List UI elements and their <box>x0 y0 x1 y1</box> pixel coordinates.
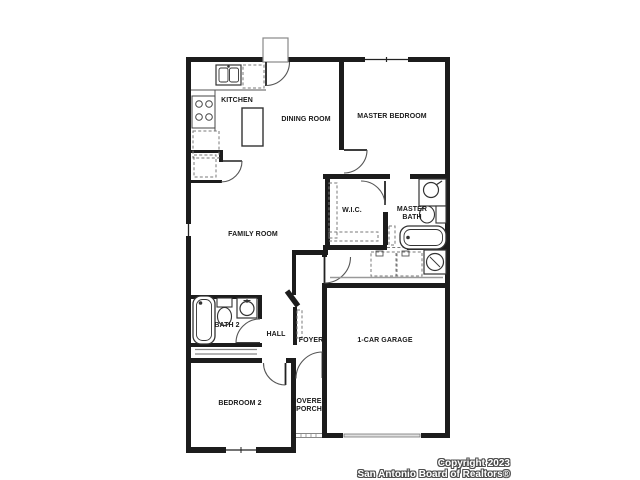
washer-icon <box>371 252 396 276</box>
coat-closet <box>297 310 302 338</box>
front-door <box>296 352 323 379</box>
copyright-line1: Copyright 2023 <box>357 458 510 469</box>
wic-door <box>361 181 385 205</box>
rear-door <box>263 38 290 86</box>
room-label-bath2: BATH 2 <box>207 322 247 330</box>
room-label-master-bath: MASTER BATH <box>393 206 431 222</box>
laundry-fixtures <box>330 250 446 278</box>
floor-plan-page: KITCHEN DINING ROOM MASTER BEDROOM FAMIL… <box>0 0 640 480</box>
water-heater-icon <box>424 250 446 274</box>
room-label-covered-porch: COVERED PORCH <box>286 398 332 414</box>
bath2-sink-icon <box>237 298 257 318</box>
laundry-door <box>325 257 351 283</box>
family-room-window <box>186 224 191 236</box>
refrigerator-icon <box>193 131 219 158</box>
room-label-bedroom2: BEDROOM 2 <box>205 400 275 408</box>
wic-shelving-bottom <box>329 232 378 241</box>
room-label-garage: 1-CAR GARAGE <box>345 337 425 345</box>
room-label-kitchen: KITCHEN <box>207 97 267 105</box>
bath2-tub-icon <box>193 296 215 344</box>
kitchen-sink-icon <box>216 65 241 85</box>
porch-steps <box>296 434 322 438</box>
bedroom2-door <box>264 363 286 385</box>
kitchen-island <box>242 108 263 146</box>
dryer-icon <box>397 252 422 276</box>
master-bedroom-door <box>344 150 367 173</box>
pantry-door <box>221 161 242 182</box>
master-tub-icon <box>400 226 446 249</box>
room-label-wic: W.I.C. <box>332 207 372 215</box>
room-label-hall: HALL <box>256 331 296 339</box>
linen-shelves <box>389 226 395 245</box>
bedroom2-closet-shelf <box>195 350 257 355</box>
dishwasher-icon <box>243 65 264 88</box>
bath2-fixtures <box>193 296 257 344</box>
room-label-dining-room: DINING ROOM <box>271 116 341 124</box>
room-label-foyer: FOYER <box>291 337 331 345</box>
garage-overhead-door <box>343 433 421 438</box>
bedroom2-window <box>226 447 256 453</box>
vanity-sink-icon <box>419 179 446 206</box>
copyright-line2: San Antonio Board of Realtors® <box>357 469 510 480</box>
room-label-family-room: FAMILY ROOM <box>218 231 288 239</box>
master-bedroom-window <box>365 57 408 62</box>
copyright-notice: Copyright 2023 San Antonio Board of Real… <box>357 458 510 480</box>
room-label-master-bedroom: MASTER BEDROOM <box>347 113 437 121</box>
